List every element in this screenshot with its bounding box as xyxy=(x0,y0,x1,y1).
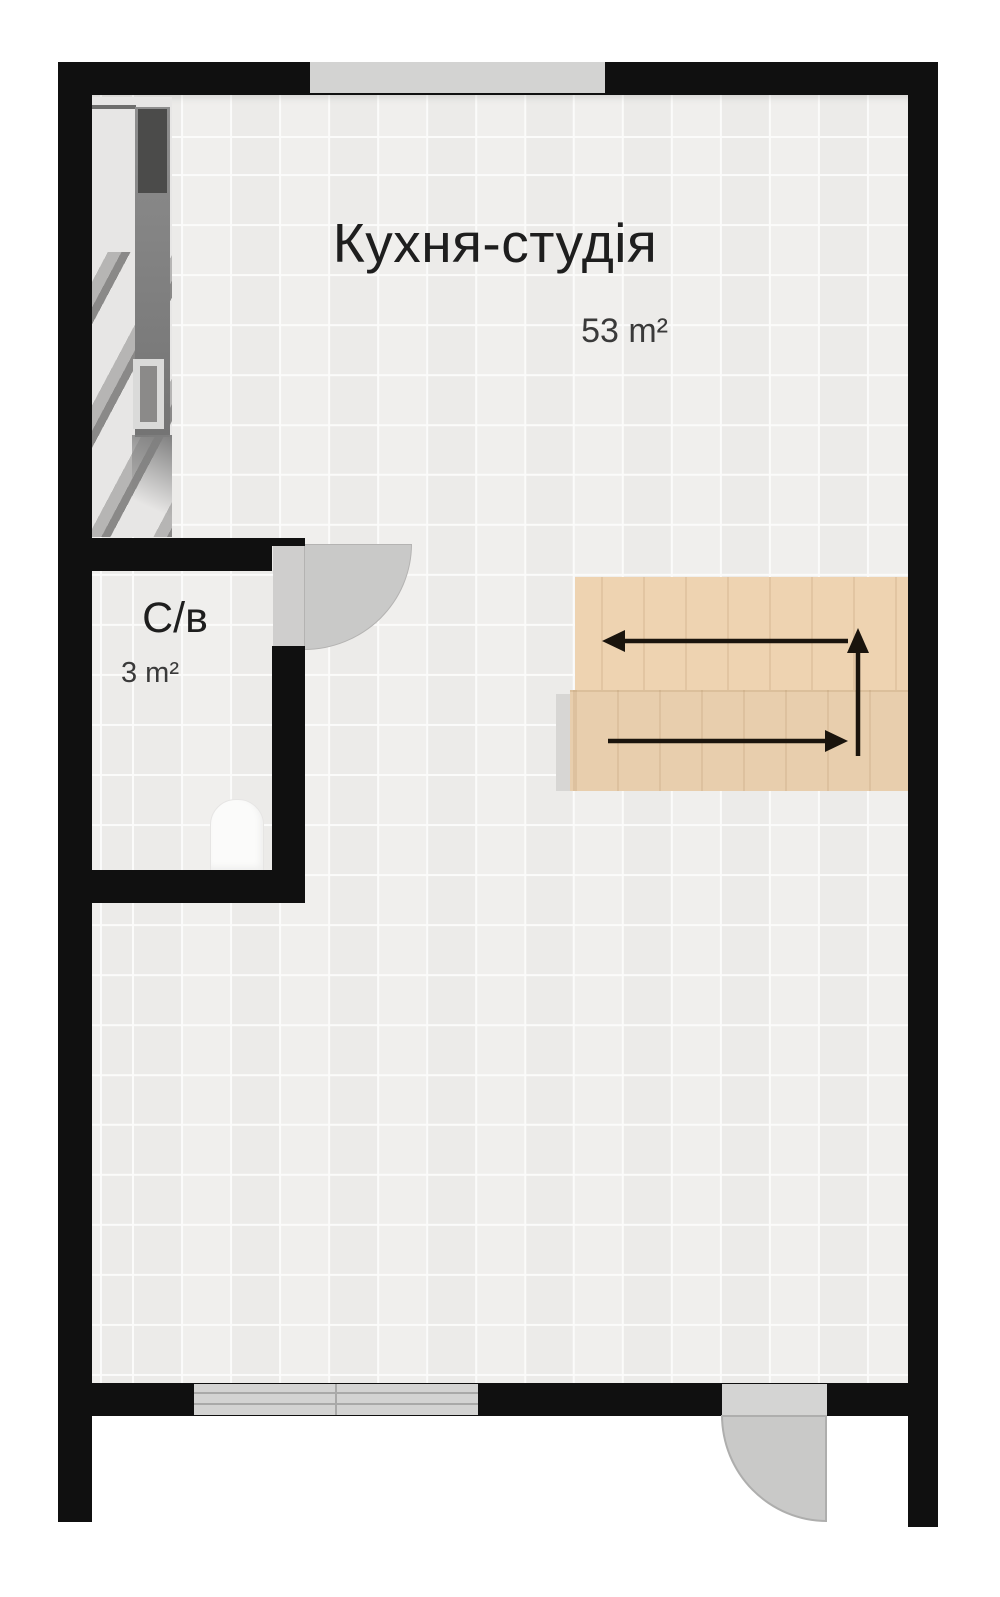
kitchen-studio-label: Кухня-студія xyxy=(235,213,755,274)
wall-right xyxy=(908,62,938,1527)
kitchen-studio-area: 53 m² xyxy=(478,312,668,351)
entry-door-swing-arc xyxy=(721,1415,827,1522)
stair-void-shadow xyxy=(132,435,172,535)
stair-void-edge xyxy=(92,105,136,109)
stairs-lower-flight xyxy=(570,690,908,791)
entry-door-leaf xyxy=(722,1384,827,1415)
stair-void-stringer-top xyxy=(138,109,167,193)
top-window xyxy=(310,62,605,93)
stair-void-feature xyxy=(92,97,172,537)
bottom-window xyxy=(194,1384,478,1415)
wall-left xyxy=(58,62,92,1522)
toilet xyxy=(210,799,264,872)
bathroom-wall-bottom xyxy=(88,870,305,903)
floor-plan: Кухня-студія 53 m² С/в 3 m² xyxy=(0,0,1000,1597)
bathroom-door-frame xyxy=(272,538,305,546)
bottom-window-divider xyxy=(335,1384,337,1415)
bathroom-label: С/в xyxy=(95,594,255,643)
bathroom-wall-top xyxy=(88,538,272,571)
stair-void-landing xyxy=(133,359,164,429)
bathroom-wall-right xyxy=(272,646,305,873)
stairs-upper-flight xyxy=(575,577,908,690)
bathroom-door-leaf xyxy=(273,546,305,650)
bathroom-area: 3 m² xyxy=(90,657,210,690)
